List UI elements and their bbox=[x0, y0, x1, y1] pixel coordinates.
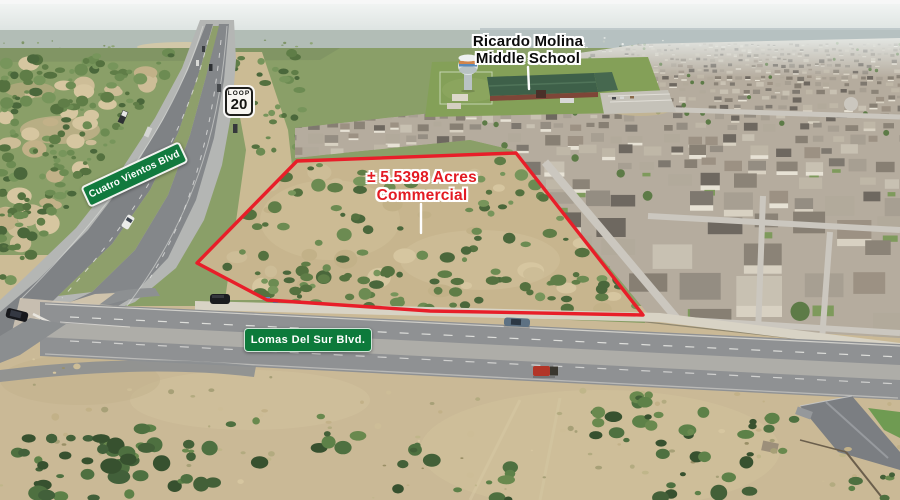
street-sign-lomas-del-sur: Lomas Del Sur Blvd. bbox=[244, 328, 372, 352]
route-shield-loop-20: LOOP 20 bbox=[225, 87, 253, 116]
route-shield-number: 20 bbox=[227, 97, 251, 112]
aerial-scene bbox=[0, 0, 900, 500]
school-leader-line bbox=[528, 67, 529, 89]
street-sign-lomas-del-sur-text: Lomas Del Sur Blvd. bbox=[251, 334, 366, 346]
parked-suv bbox=[210, 294, 230, 304]
aerial-listing-photo: Ricardo Molina Middle School ± 5.5398 Ac… bbox=[0, 0, 900, 500]
